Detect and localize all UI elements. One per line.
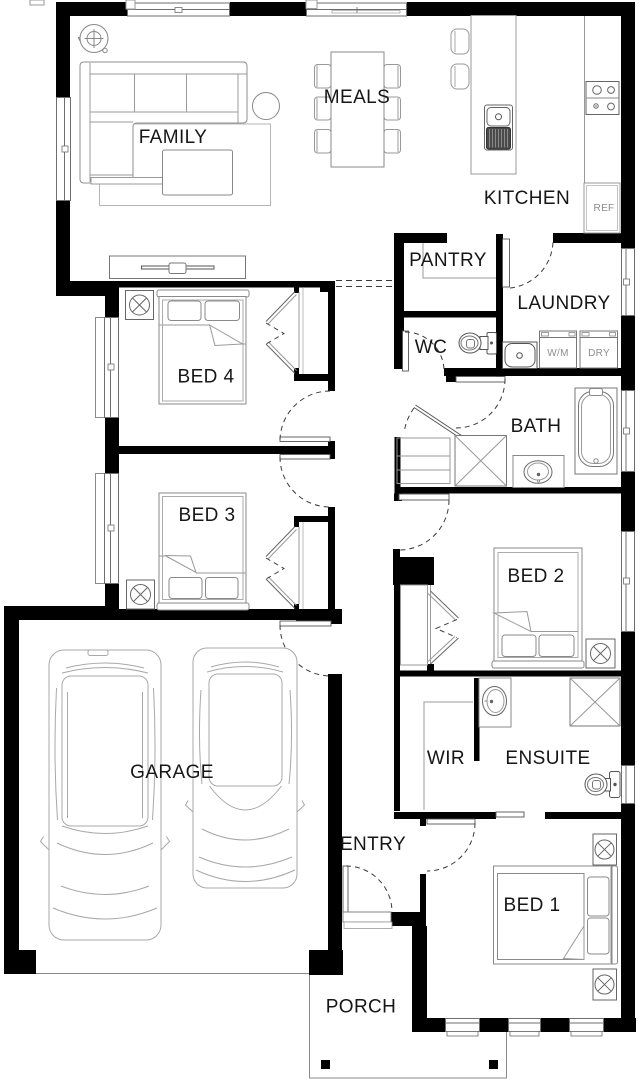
svg-text:BATH: BATH	[511, 416, 562, 437]
svg-text:ENSUITE: ENSUITE	[505, 748, 590, 769]
svg-text:PANTRY: PANTRY	[409, 250, 487, 271]
svg-text:ENTRY: ENTRY	[340, 834, 406, 855]
svg-text:GARAGE: GARAGE	[130, 762, 214, 783]
svg-text:BED 2: BED 2	[508, 566, 565, 587]
svg-text:DRY: DRY	[588, 348, 610, 359]
svg-text:KITCHEN: KITCHEN	[484, 188, 570, 209]
svg-text:W/M: W/M	[547, 348, 568, 359]
svg-text:BED 4: BED 4	[178, 367, 235, 388]
svg-text:MEALS: MEALS	[324, 87, 390, 108]
svg-text:BED 3: BED 3	[179, 505, 236, 526]
svg-text:FAMILY: FAMILY	[139, 127, 208, 148]
svg-text:WIR: WIR	[427, 748, 465, 769]
svg-text:BED 1: BED 1	[504, 895, 561, 916]
svg-text:WC: WC	[415, 337, 447, 358]
svg-text:REF: REF	[594, 203, 615, 214]
svg-text:PORCH: PORCH	[326, 997, 397, 1018]
svg-text:LAUNDRY: LAUNDRY	[517, 293, 610, 314]
